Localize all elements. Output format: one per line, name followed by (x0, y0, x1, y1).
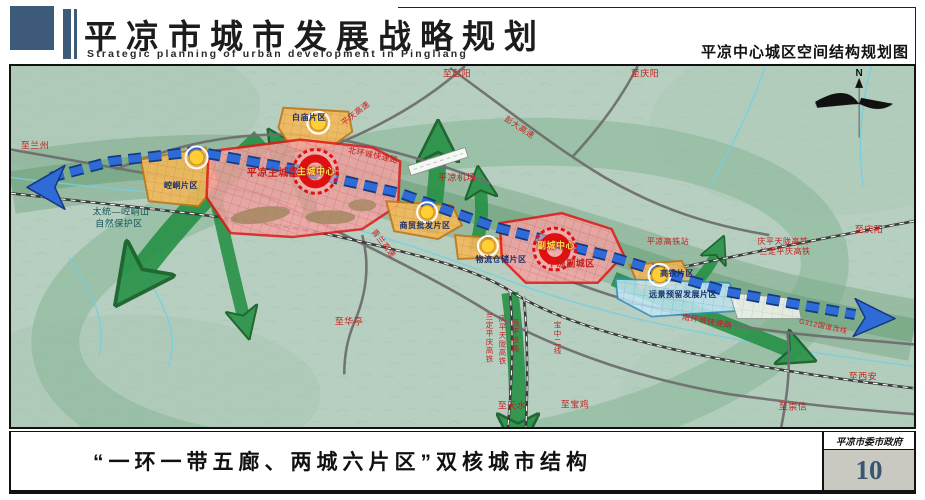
main-city-core-marker (293, 150, 337, 194)
footer: “一环一带五廊、两城六片区”双核城市结构 平凉市委市政府 10 (9, 431, 916, 494)
map-title: 平凉中心城区空间结构规划图 (701, 41, 909, 62)
node-baimiao (307, 112, 329, 134)
page-number: 10 (824, 450, 914, 490)
map-area: N 至兰州太统—崆峒山自然保护区崆峒片区平凉主城区主城中心北环城快速路白庙片区平… (9, 64, 916, 429)
node-logistics (478, 236, 498, 256)
header-rule-right (915, 7, 916, 64)
node-hsr (649, 264, 671, 286)
logo-square (10, 6, 54, 50)
header-rule (398, 7, 916, 8)
compass-north-label: N (856, 68, 863, 79)
header-accent-bar-thin (74, 9, 77, 59)
map-canvas: N (11, 66, 914, 427)
header: 平凉市城市发展战略规划 Strategic planning of urban … (0, 0, 925, 64)
page-number-box: 平凉市委市政府 10 (822, 432, 914, 490)
structure-caption: “一环一带五廊、两城六片区”双核城市结构 (11, 432, 822, 490)
page: 平凉市城市发展战略规划 Strategic planning of urban … (0, 0, 925, 500)
sub-city-core-marker (534, 228, 576, 270)
node-wholesale (417, 202, 437, 222)
header-accent-bar (63, 9, 71, 59)
agency-label: 平凉市委市政府 (824, 432, 914, 450)
page-subtitle-en: Strategic planning of urban development … (87, 48, 468, 60)
node-kongtong (186, 147, 208, 169)
